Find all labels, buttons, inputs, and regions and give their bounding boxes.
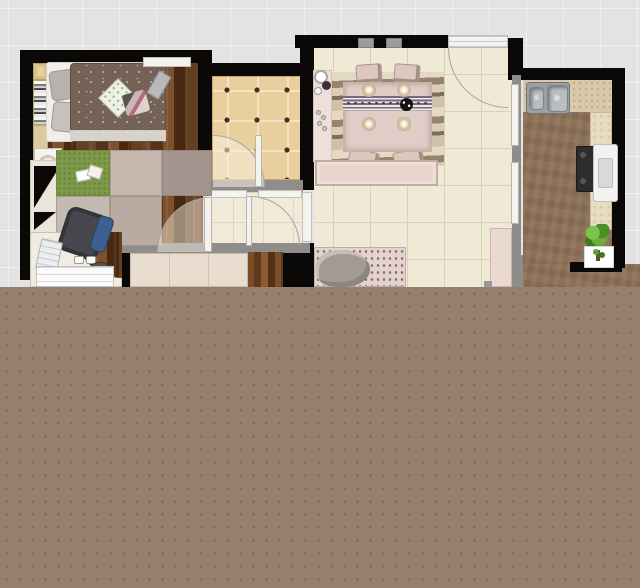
appliance-door <box>598 158 613 188</box>
bedroom-door-leaf <box>204 197 212 252</box>
bed-fold <box>70 130 166 141</box>
drawer-unit <box>36 266 114 287</box>
sideboard <box>315 160 438 186</box>
bathroom-door-leaf <box>255 135 262 187</box>
hall-wood-bottom <box>248 252 283 287</box>
gray-wall-kitchen-divider-lower <box>512 255 523 287</box>
burner-1 <box>580 152 586 158</box>
threshold-hall-right <box>258 190 302 198</box>
desk-switch-1 <box>74 256 84 264</box>
potted-plant <box>585 224 611 246</box>
wall-dining-left <box>300 35 314 190</box>
burner-2 <box>580 178 586 184</box>
brown-cutoff-panel <box>0 287 640 588</box>
bead-4 <box>322 126 327 131</box>
dining-table <box>343 82 432 152</box>
black-flower-centerpiece <box>400 98 413 111</box>
wall-shelf <box>143 57 191 67</box>
wall-kitchen-top <box>520 68 617 80</box>
wall-bottom-center-gap <box>283 250 300 287</box>
plate-bottom-left <box>362 117 376 131</box>
tall-cabinet <box>490 228 512 287</box>
wall-bathroom-top <box>212 63 304 76</box>
dining-chair-top-right <box>393 63 420 84</box>
plate-top-right <box>397 83 411 97</box>
plate-top-left <box>362 83 376 97</box>
decor-dark-blob <box>322 81 331 90</box>
gray-blanket <box>316 250 370 287</box>
carpet-patch-dark <box>162 150 212 196</box>
dining-chair-top-left <box>355 63 382 84</box>
decor-ring <box>314 87 322 95</box>
hall-cabinet <box>130 253 248 287</box>
carpet-patch-light <box>110 150 162 196</box>
bead-1 <box>316 110 321 115</box>
window-dining-1 <box>358 38 374 48</box>
hallway-door-leaf <box>246 196 252 246</box>
plant-box-leaf-2 <box>599 252 605 258</box>
plate-bottom-right <box>397 117 411 131</box>
sliding-door-panel-2 <box>511 162 519 224</box>
runner-bead-row <box>345 101 430 105</box>
sliding-door-panel-1 <box>511 84 519 146</box>
sink-drain-left <box>534 95 539 100</box>
floor-plan-canvas <box>0 0 640 588</box>
window-dining-2 <box>386 38 402 48</box>
bead-2 <box>321 115 326 120</box>
entry-door-leaf <box>448 35 508 48</box>
doorway-hall-dining <box>302 192 312 242</box>
bead-3 <box>317 121 322 126</box>
sink-drain-right <box>554 95 560 101</box>
